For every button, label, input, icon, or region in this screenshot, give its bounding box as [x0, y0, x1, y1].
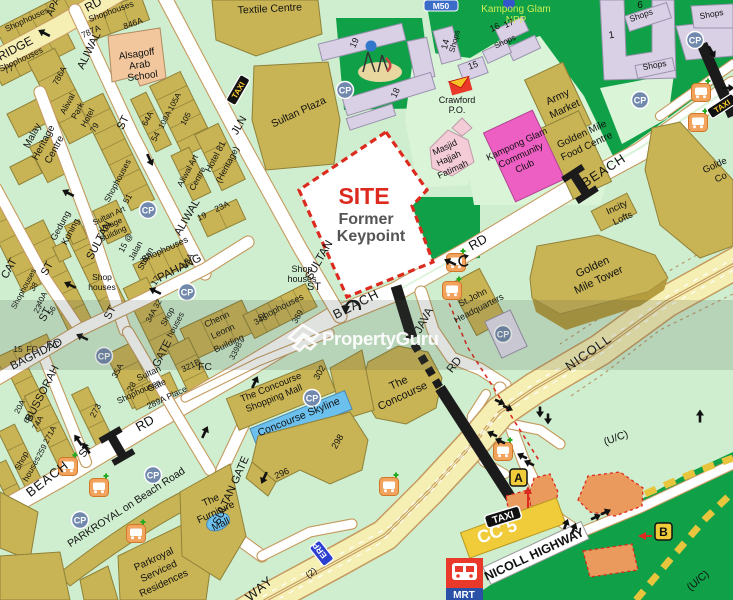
svg-text:P.O.: P.O. — [449, 105, 466, 115]
svg-text:Keypoint: Keypoint — [337, 228, 406, 245]
svg-text:CP: CP — [339, 86, 352, 96]
svg-text:6: 6 — [637, 0, 643, 11]
svg-text:Shop: Shop — [92, 272, 112, 282]
svg-text:Crawford: Crawford — [439, 95, 476, 105]
svg-text:CP: CP — [142, 206, 155, 216]
svg-text:CP: CP — [181, 288, 194, 298]
svg-text:CP: CP — [306, 394, 319, 404]
svg-text:CP: CP — [74, 516, 87, 526]
svg-text:M50: M50 — [433, 1, 450, 11]
svg-text:SITE: SITE — [338, 183, 389, 209]
svg-text:MRT: MRT — [453, 590, 475, 600]
svg-text:Former: Former — [338, 211, 393, 228]
svg-text:ST: ST — [307, 281, 321, 293]
svg-text:PropertyGuru: PropertyGuru — [322, 328, 439, 349]
svg-text:CP: CP — [147, 471, 160, 481]
svg-text:Kampong Glam: Kampong Glam — [481, 4, 550, 15]
svg-text:CP: CP — [634, 96, 647, 106]
svg-text:A: A — [514, 471, 523, 485]
svg-text:B: B — [659, 525, 668, 539]
svg-text:CP: CP — [689, 36, 702, 46]
svg-text:houses: houses — [88, 282, 115, 292]
svg-text:Shop: Shop — [291, 264, 312, 274]
